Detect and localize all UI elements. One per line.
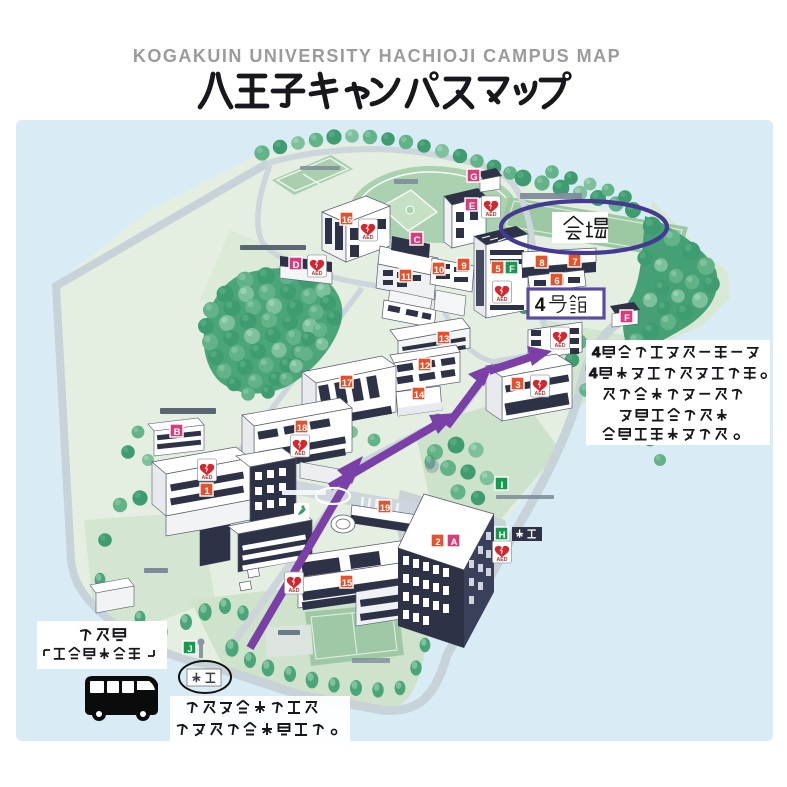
svg-text:J: J — [187, 644, 192, 655]
svg-text:E: E — [469, 201, 475, 212]
svg-text:14: 14 — [414, 390, 425, 401]
svg-text:5: 5 — [495, 264, 501, 275]
svg-text:12: 12 — [420, 361, 431, 372]
svg-text:D: D — [293, 260, 300, 271]
svg-text:4: 4 — [592, 344, 601, 361]
svg-text:KOGAKUIN UNIVERSITY HACHIOJI C: KOGAKUIN UNIVERSITY HACHIOJI CAMPUS MAP — [133, 46, 621, 66]
svg-text:4: 4 — [535, 295, 546, 316]
svg-text:16: 16 — [342, 215, 353, 226]
svg-text:7: 7 — [572, 257, 577, 268]
svg-text:B: B — [174, 427, 181, 438]
svg-text:8: 8 — [539, 258, 544, 269]
svg-text:A: A — [451, 537, 458, 548]
svg-text:19: 19 — [380, 503, 391, 514]
svg-text:H: H — [499, 530, 506, 541]
svg-text:3: 3 — [515, 380, 520, 391]
svg-text:G: G — [470, 172, 477, 183]
svg-text:17: 17 — [342, 378, 353, 389]
svg-text:10: 10 — [434, 265, 445, 276]
svg-text:6: 6 — [554, 276, 559, 287]
svg-text:2: 2 — [435, 537, 440, 548]
svg-text:F: F — [509, 264, 515, 275]
svg-text:9: 9 — [461, 261, 466, 272]
svg-text:15: 15 — [342, 578, 353, 589]
svg-text:1: 1 — [204, 486, 210, 497]
svg-text:11: 11 — [401, 272, 412, 283]
svg-text:C: C — [414, 235, 421, 246]
svg-text:18: 18 — [297, 423, 308, 434]
svg-text:13: 13 — [439, 334, 450, 345]
svg-text:F: F — [624, 313, 630, 324]
svg-text:4: 4 — [589, 365, 598, 382]
svg-text:I: I — [501, 480, 504, 491]
